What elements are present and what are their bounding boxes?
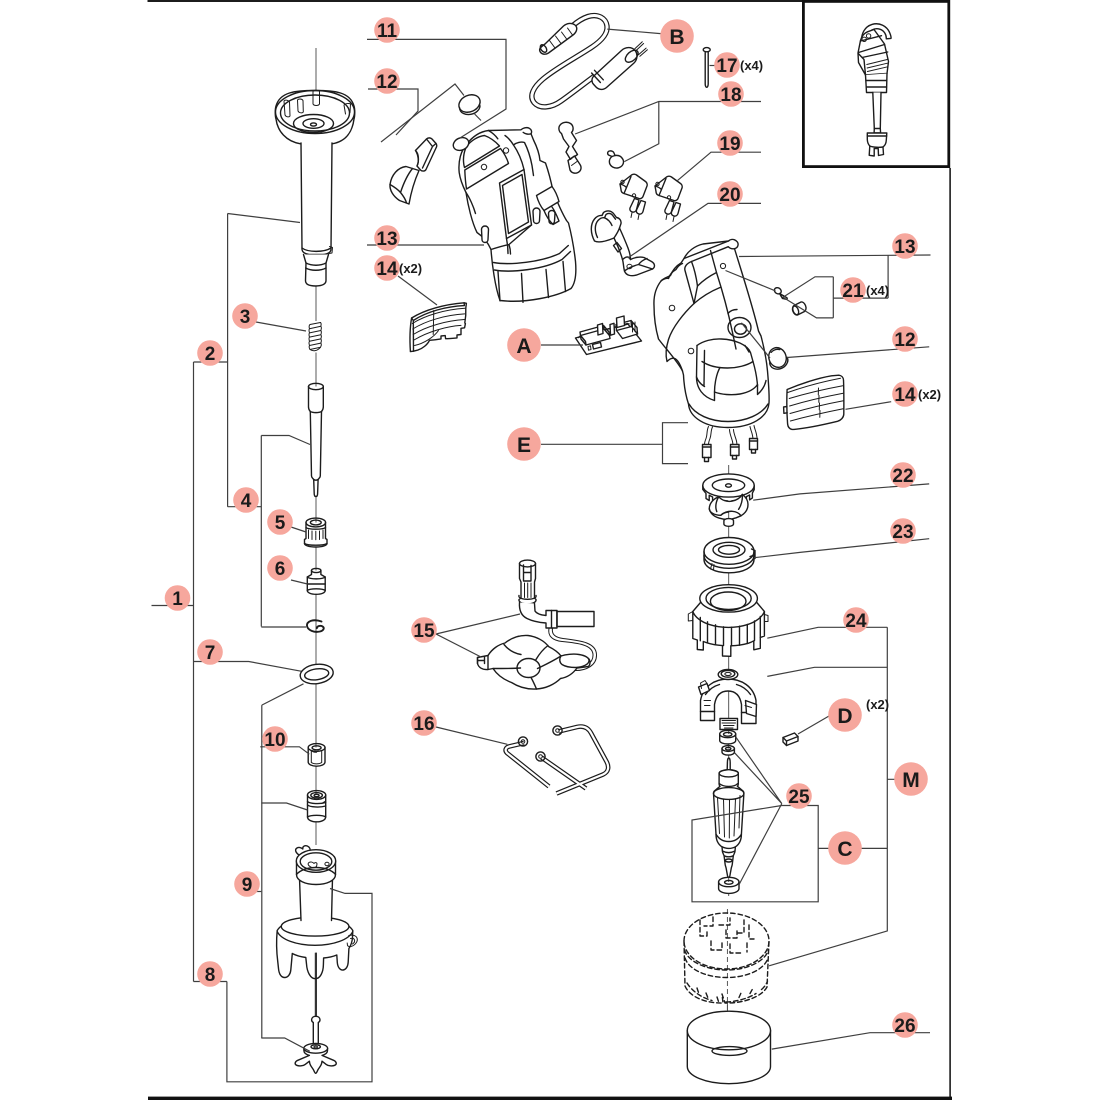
svg-text:(x2): (x2) [918,387,941,402]
svg-text:5: 5 [275,513,286,534]
svg-text:(x4): (x4) [866,283,889,298]
svg-text:1: 1 [172,589,183,610]
svg-text:24: 24 [845,611,867,632]
svg-text:(x4): (x4) [740,58,763,73]
svg-text:20: 20 [719,185,740,206]
svg-text:4: 4 [241,491,252,512]
svg-text:D: D [837,705,852,728]
svg-text:21: 21 [842,281,864,302]
svg-text:10: 10 [264,730,285,751]
svg-text:(x2): (x2) [866,697,889,712]
svg-text:3: 3 [240,307,251,328]
svg-text:9: 9 [242,875,253,896]
svg-text:19: 19 [719,134,740,155]
svg-text:E: E [517,434,531,457]
svg-text:B: B [669,26,684,49]
svg-text:C: C [837,838,852,861]
svg-text:7: 7 [205,643,216,664]
svg-text:13: 13 [894,237,915,258]
svg-text:26: 26 [894,1016,915,1037]
svg-text:18: 18 [720,85,741,106]
svg-text:2: 2 [205,344,216,365]
svg-text:M: M [902,769,920,792]
svg-text:14: 14 [376,259,398,280]
svg-text:14: 14 [894,385,916,406]
svg-text:(x2): (x2) [399,261,422,276]
svg-text:22: 22 [892,466,913,487]
svg-text:16: 16 [413,714,434,735]
svg-text:11: 11 [377,21,398,42]
svg-text:8: 8 [205,965,216,986]
svg-text:15: 15 [413,621,435,642]
svg-text:6: 6 [275,559,286,580]
svg-text:12: 12 [894,330,915,351]
svg-text:17: 17 [716,56,737,77]
svg-text:23: 23 [892,522,913,543]
svg-text:13: 13 [376,229,397,250]
svg-text:A: A [516,335,531,358]
svg-text:12: 12 [376,72,397,93]
svg-text:25: 25 [788,787,810,808]
